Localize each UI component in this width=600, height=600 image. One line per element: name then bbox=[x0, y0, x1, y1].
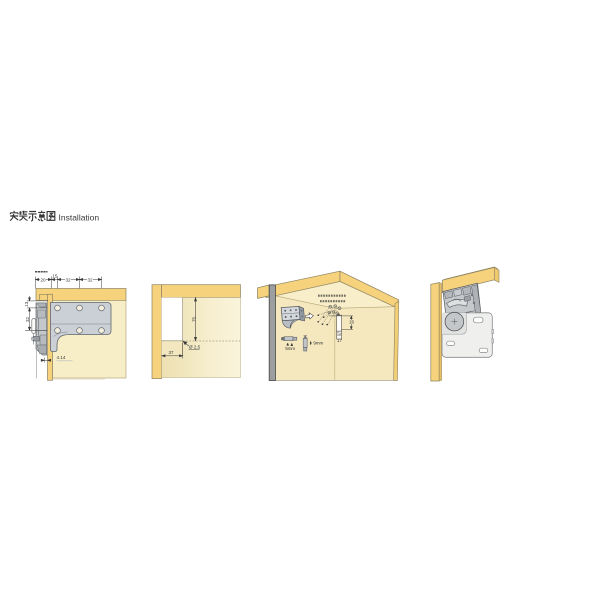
svg-text:32: 32 bbox=[88, 277, 94, 282]
svg-text:32: 32 bbox=[25, 316, 30, 322]
svg-text:13: 13 bbox=[24, 301, 29, 307]
svg-text:75: 75 bbox=[192, 316, 197, 322]
svg-text:16: 16 bbox=[349, 320, 355, 325]
svg-text:15: 15 bbox=[52, 274, 58, 279]
svg-text:20: 20 bbox=[41, 277, 47, 282]
svg-text:9mm: 9mm bbox=[313, 341, 323, 346]
svg-text:32: 32 bbox=[66, 277, 72, 282]
svg-text:17: 17 bbox=[337, 338, 343, 343]
svg-text:37: 37 bbox=[169, 350, 175, 355]
svg-text:5mm: 5mm bbox=[285, 346, 295, 351]
svg-text:Ø 2.5: Ø 2.5 bbox=[189, 344, 201, 349]
svg-text:Installation: Installation bbox=[59, 213, 100, 223]
svg-text:4.14: 4.14 bbox=[57, 355, 66, 360]
